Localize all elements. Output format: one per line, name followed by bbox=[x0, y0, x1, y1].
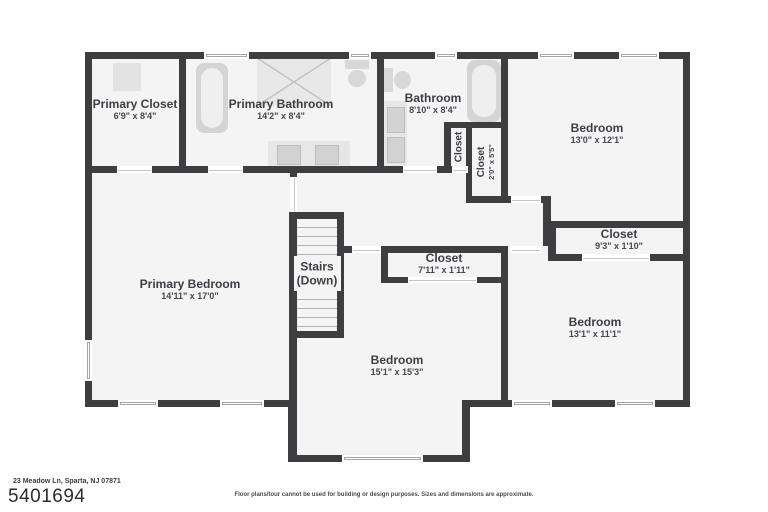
wall bbox=[289, 212, 344, 219]
room-label-primary-closet: Primary Closet 6'9" x 8'4" bbox=[93, 98, 178, 122]
door-opening bbox=[403, 166, 437, 173]
wall bbox=[290, 166, 297, 177]
wall bbox=[444, 122, 451, 173]
wall bbox=[377, 52, 384, 173]
wall bbox=[683, 52, 690, 407]
wall bbox=[477, 277, 508, 283]
toilet-icon bbox=[384, 66, 412, 94]
window bbox=[118, 400, 158, 407]
window bbox=[619, 52, 659, 59]
door-opening bbox=[208, 166, 243, 173]
door-opening bbox=[408, 277, 477, 283]
window bbox=[615, 400, 655, 407]
wall bbox=[289, 331, 344, 338]
window bbox=[538, 52, 574, 59]
room-label-bedroom-top-right: Bedroom 13'0" x 12'1" bbox=[571, 122, 624, 146]
wall bbox=[344, 246, 352, 253]
wall bbox=[501, 52, 508, 203]
door-opening bbox=[352, 246, 381, 253]
room-label-stairs: Stairs (Down) bbox=[297, 260, 338, 287]
window bbox=[435, 52, 457, 59]
door-opening bbox=[511, 246, 541, 253]
door-opening bbox=[290, 177, 297, 212]
room-label-bathroom: Bathroom 8'10" x 8'4" bbox=[405, 92, 462, 116]
window bbox=[349, 52, 371, 59]
window bbox=[220, 400, 264, 407]
wall bbox=[179, 52, 186, 173]
wall bbox=[85, 400, 297, 407]
room-label-bedroom-right: Bedroom 13'1" x 11'1" bbox=[569, 316, 622, 340]
bathtub-icon bbox=[196, 63, 228, 133]
disclaimer-text: Floor plans/tour cannot be used for buil… bbox=[0, 492, 768, 498]
floor-fill-extension bbox=[292, 400, 466, 458]
door-opening bbox=[511, 196, 541, 203]
room-label-closet-1: Closet bbox=[454, 132, 465, 163]
closet-shelf-icon bbox=[113, 63, 141, 91]
room-label-closet-4: Closet 7'11" x 1'11" bbox=[418, 252, 470, 276]
room-label-bedroom-middle: Bedroom 15'1" x 15'3" bbox=[371, 354, 424, 378]
bathtub-icon bbox=[467, 60, 501, 122]
vanity-sink-icon bbox=[277, 145, 301, 165]
wall bbox=[85, 52, 690, 59]
room-label-closet-2: Closet 2'0" x 5'5" bbox=[476, 144, 496, 180]
door-opening bbox=[117, 166, 152, 173]
window bbox=[342, 455, 423, 462]
wall bbox=[462, 400, 690, 407]
room-label-primary-bedroom: Primary Bedroom 14'11" x 17'0" bbox=[140, 278, 241, 302]
vanity-sink-icon bbox=[387, 137, 405, 163]
vanity-sink-icon bbox=[315, 145, 339, 165]
vanity-sink-icon bbox=[387, 107, 405, 133]
window bbox=[204, 52, 249, 59]
toilet-icon bbox=[344, 60, 370, 88]
window bbox=[512, 400, 552, 407]
property-address: 23 Meadow Ln, Sparta, NJ 07871 bbox=[13, 478, 121, 485]
window bbox=[85, 340, 92, 381]
wall bbox=[381, 277, 408, 283]
room-label-closet-3: Closet 9'3" x 1'10" bbox=[595, 228, 643, 252]
door-opening bbox=[452, 166, 468, 173]
room-label-primary-bathroom: Primary Bathroom 14'2" x 8'4" bbox=[229, 98, 334, 122]
wall bbox=[501, 196, 511, 203]
wall bbox=[501, 246, 508, 407]
wall bbox=[444, 122, 508, 128]
wall bbox=[462, 407, 470, 455]
floor-plan: Primary Closet 6'9" x 8'4" Primary Bathr… bbox=[0, 0, 768, 512]
door-opening bbox=[582, 254, 650, 261]
